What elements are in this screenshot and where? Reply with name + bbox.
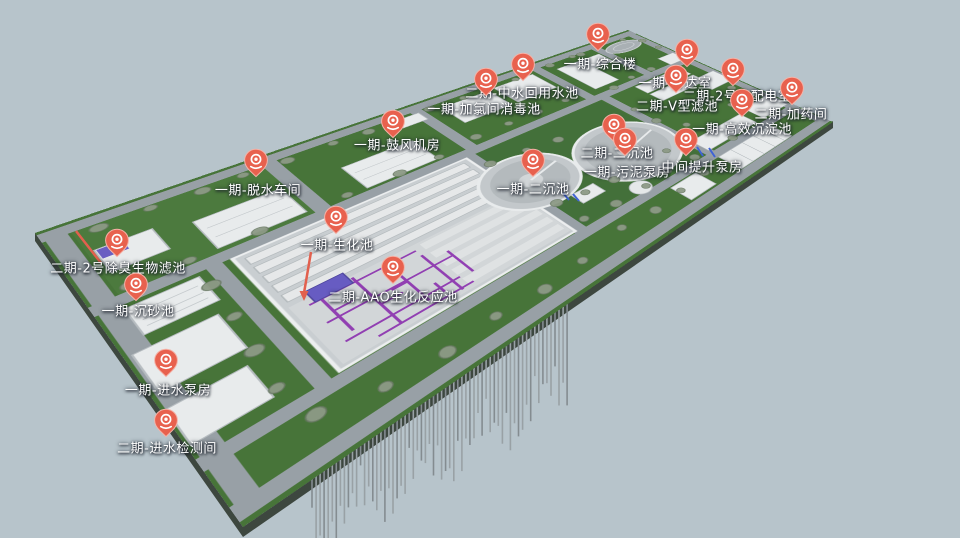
map-marker-inlet-monitoring-room[interactable] xyxy=(153,408,179,444)
map-marker-aao-bioreactor[interactable] xyxy=(380,255,406,291)
location-pin-icon xyxy=(243,148,269,180)
map-marker-v-type-filter[interactable] xyxy=(663,64,689,100)
location-pin-icon xyxy=(510,52,536,84)
location-pin-icon xyxy=(323,205,349,237)
location-pin-icon xyxy=(123,272,149,304)
plant-3d-scene[interactable]: 一期-综合楼 二期-中水回用水池 一期-传达室 一期-加氯间消毒池 二期-2号变… xyxy=(0,0,960,538)
map-marker-comprehensive-building[interactable] xyxy=(585,22,611,58)
map-marker-chlorination-disinfection-pool[interactable] xyxy=(473,67,499,103)
map-marker-high-efficiency-sedimentation[interactable] xyxy=(729,88,755,124)
map-marker-intermediate-lift-pump-room[interactable] xyxy=(673,127,699,163)
location-pin-icon xyxy=(729,88,755,120)
map-marker-blower-room[interactable] xyxy=(380,109,406,145)
map-marker-reclaimed-water-pool[interactable] xyxy=(510,52,536,88)
marker-label-sludge-pump-room: 一期-污泥泵房 xyxy=(584,162,670,181)
location-pin-icon xyxy=(585,22,611,54)
location-pin-icon xyxy=(612,127,638,159)
markers-layer: 一期-综合楼 二期-中水回用水池 一期-传达室 一期-加氯间消毒池 二期-2号变… xyxy=(0,0,960,538)
location-pin-icon xyxy=(153,408,179,440)
map-marker-phase1-secondary-sedimentation[interactable] xyxy=(520,148,546,184)
location-pin-icon xyxy=(663,64,689,96)
location-pin-icon xyxy=(380,109,406,141)
location-pin-icon xyxy=(779,76,805,108)
map-marker-grit-chamber[interactable] xyxy=(123,272,149,308)
location-pin-icon xyxy=(473,67,499,99)
map-marker-inlet-pump-room[interactable] xyxy=(153,348,179,384)
location-pin-icon xyxy=(673,127,699,159)
location-pin-icon xyxy=(720,57,746,89)
map-marker-dewatering-workshop[interactable] xyxy=(243,148,269,184)
location-pin-icon xyxy=(520,148,546,180)
location-pin-icon xyxy=(104,228,130,260)
location-pin-icon xyxy=(380,255,406,287)
map-marker-sludge-pump-room[interactable] xyxy=(612,127,638,163)
map-marker-dosing-room[interactable] xyxy=(779,76,805,112)
map-marker-no2-deodorization-biofilter[interactable] xyxy=(104,228,130,264)
location-pin-icon xyxy=(153,348,179,380)
map-marker-biochemical-pool[interactable] xyxy=(323,205,349,241)
